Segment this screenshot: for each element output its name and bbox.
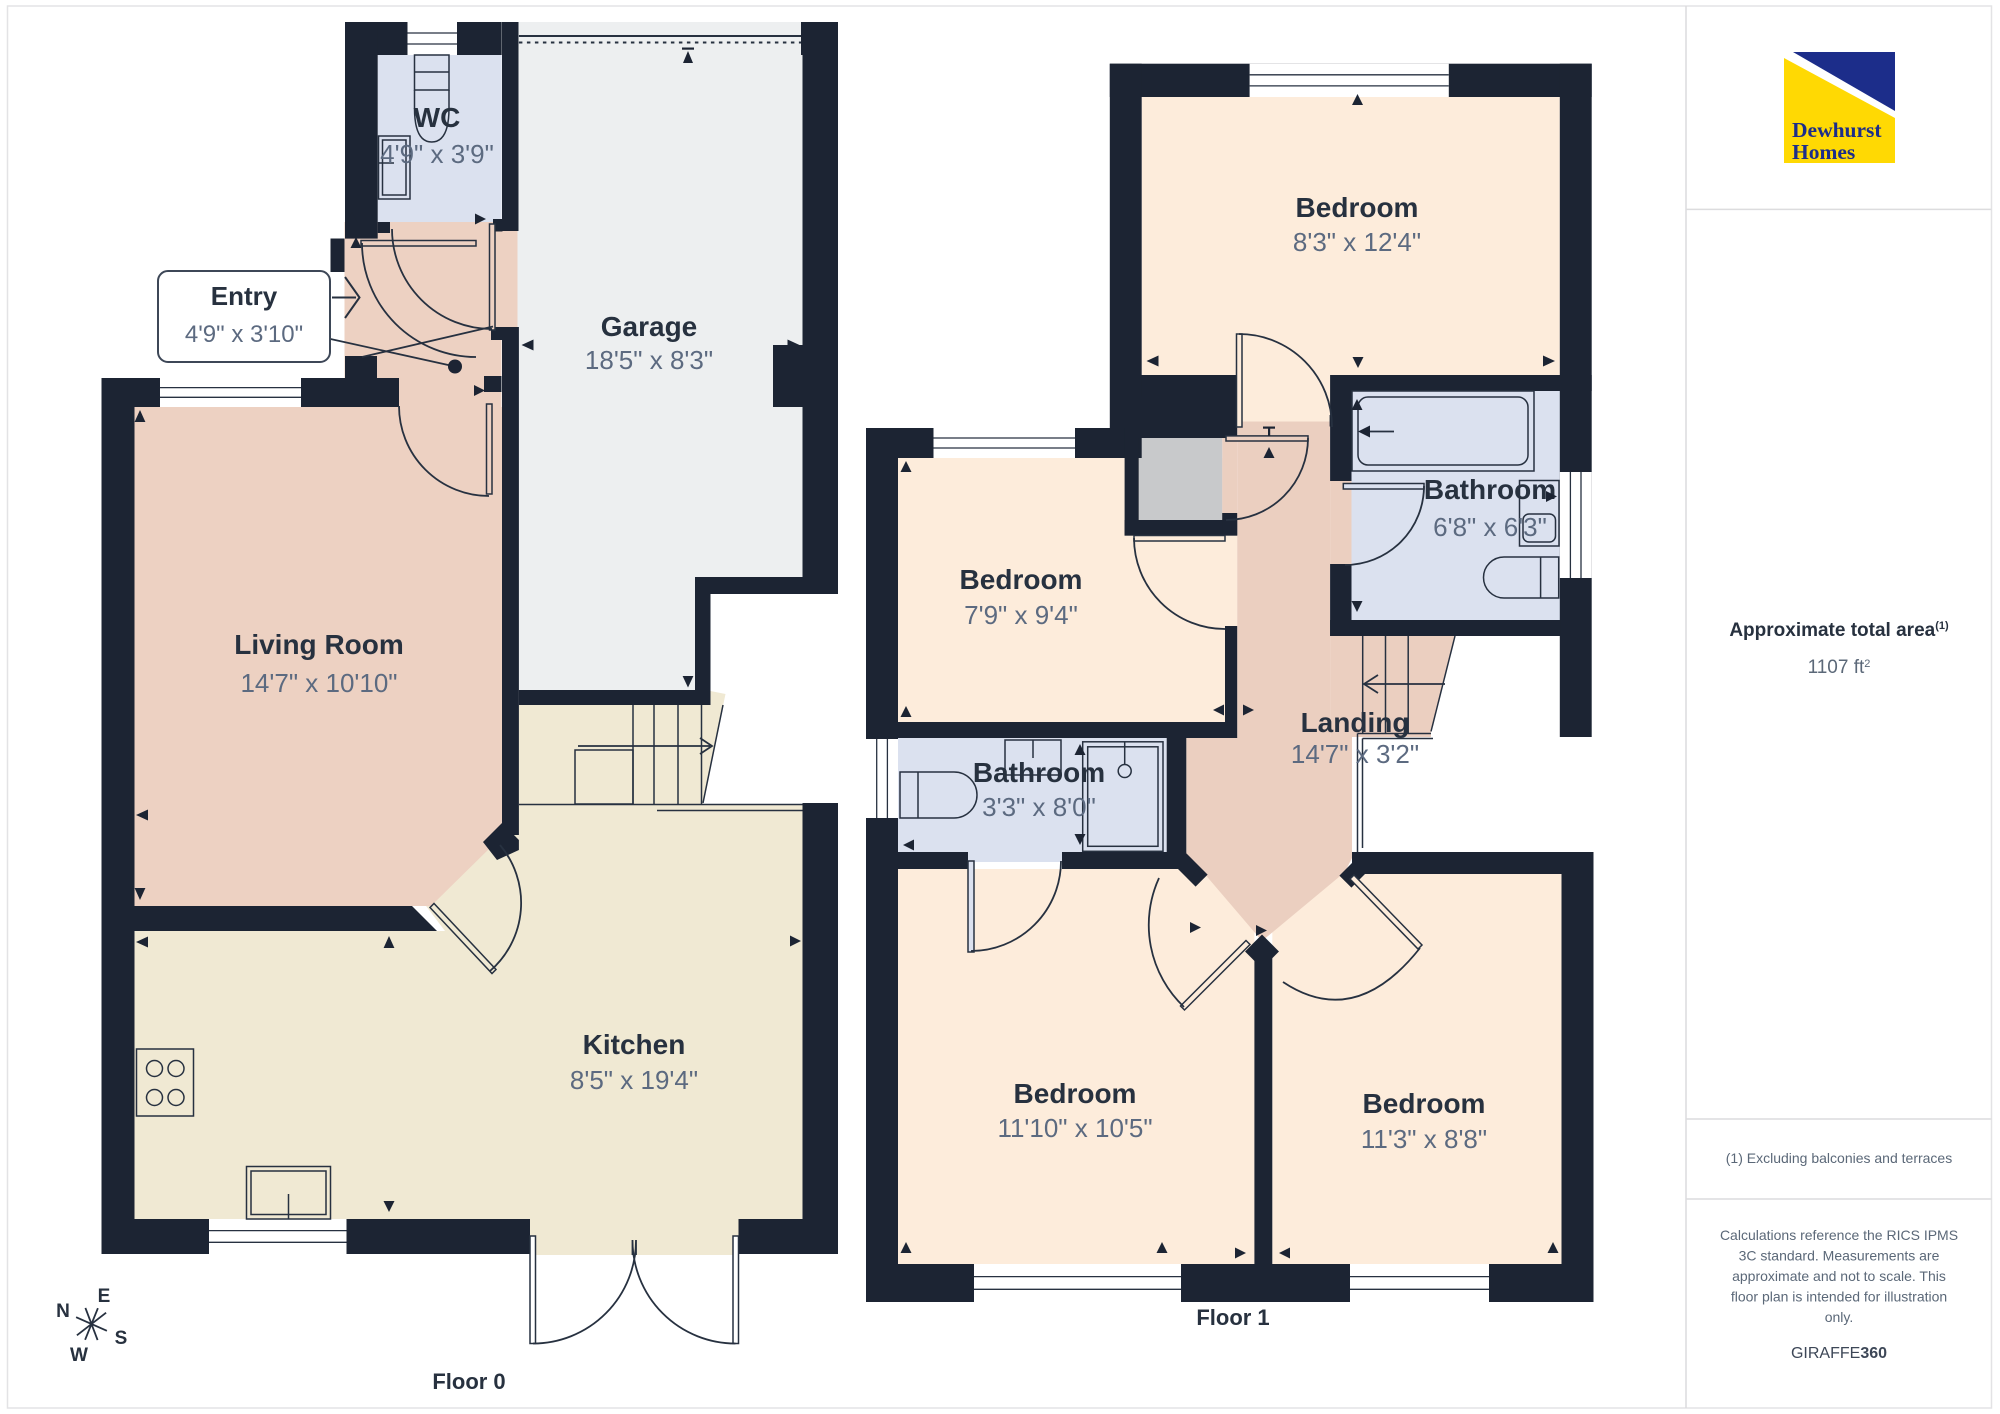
svg-text:Bedroom: Bedroom <box>1363 1088 1486 1119</box>
svg-text:GIRAFFE360: GIRAFFE360 <box>1791 1345 1887 1362</box>
svg-text:Living Room: Living Room <box>234 629 404 660</box>
svg-text:11'10" x 10'5": 11'10" x 10'5" <box>997 1113 1152 1143</box>
svg-text:Bedroom: Bedroom <box>1296 192 1419 223</box>
svg-text:3'3" x 8'0": 3'3" x 8'0" <box>982 792 1096 822</box>
svg-text:7'9" x 9'4": 7'9" x 9'4" <box>964 600 1078 630</box>
svg-text:4'9" x 3'10": 4'9" x 3'10" <box>185 321 303 348</box>
svg-text:14'7" x 3'2": 14'7" x 3'2" <box>1291 739 1419 769</box>
svg-text:floor plan is intended for ill: floor plan is intended for illustration <box>1731 1289 1947 1305</box>
svg-text:Bedroom: Bedroom <box>1014 1078 1137 1109</box>
svg-text:Bathroom: Bathroom <box>973 757 1105 788</box>
svg-text:N: N <box>56 1301 70 1322</box>
svg-text:14'7" x 10'10": 14'7" x 10'10" <box>240 668 397 698</box>
svg-text:18'5" x 8'3": 18'5" x 8'3" <box>585 345 713 375</box>
svg-text:Calculations reference the RIC: Calculations reference the RICS IPMS <box>1720 1227 1958 1243</box>
svg-text:3C standard. Measurements are: 3C standard. Measurements are <box>1739 1248 1940 1264</box>
svg-text:(1) Excluding balconies and te: (1) Excluding balconies and terraces <box>1726 1150 1952 1166</box>
svg-text:Floor 0: Floor 0 <box>432 1369 505 1394</box>
svg-text:Landing: Landing <box>1301 707 1410 738</box>
svg-text:4'9" x 3'9": 4'9" x 3'9" <box>380 139 494 169</box>
svg-text:approximate and not to scale.: approximate and not to scale. This <box>1732 1268 1946 1284</box>
svg-text:Homes: Homes <box>1792 140 1855 164</box>
svg-text:S: S <box>115 1328 128 1349</box>
svg-text:E: E <box>98 1286 111 1307</box>
svg-text:11'3" x 8'8": 11'3" x 8'8" <box>1361 1124 1487 1154</box>
svg-text:6'8" x 6'3": 6'8" x 6'3" <box>1433 512 1547 542</box>
svg-text:Bedroom: Bedroom <box>960 564 1083 595</box>
svg-text:8'5" x 19'4": 8'5" x 19'4" <box>570 1065 698 1095</box>
svg-text:8'3" x 12'4": 8'3" x 12'4" <box>1293 227 1421 257</box>
svg-text:1107 ft2: 1107 ft2 <box>1808 657 1871 678</box>
svg-text:only.: only. <box>1825 1309 1854 1325</box>
svg-text:Garage: Garage <box>601 311 698 342</box>
svg-text:Kitchen: Kitchen <box>583 1029 686 1060</box>
svg-text:Bathroom: Bathroom <box>1424 474 1556 505</box>
svg-text:WC: WC <box>414 102 461 133</box>
svg-text:Approximate total area(1): Approximate total area(1) <box>1729 620 1949 641</box>
svg-text:Entry: Entry <box>211 281 278 311</box>
svg-text:W: W <box>70 1345 88 1366</box>
svg-text:Floor 1: Floor 1 <box>1196 1305 1269 1330</box>
svg-text:Dewhurst: Dewhurst <box>1792 118 1882 142</box>
